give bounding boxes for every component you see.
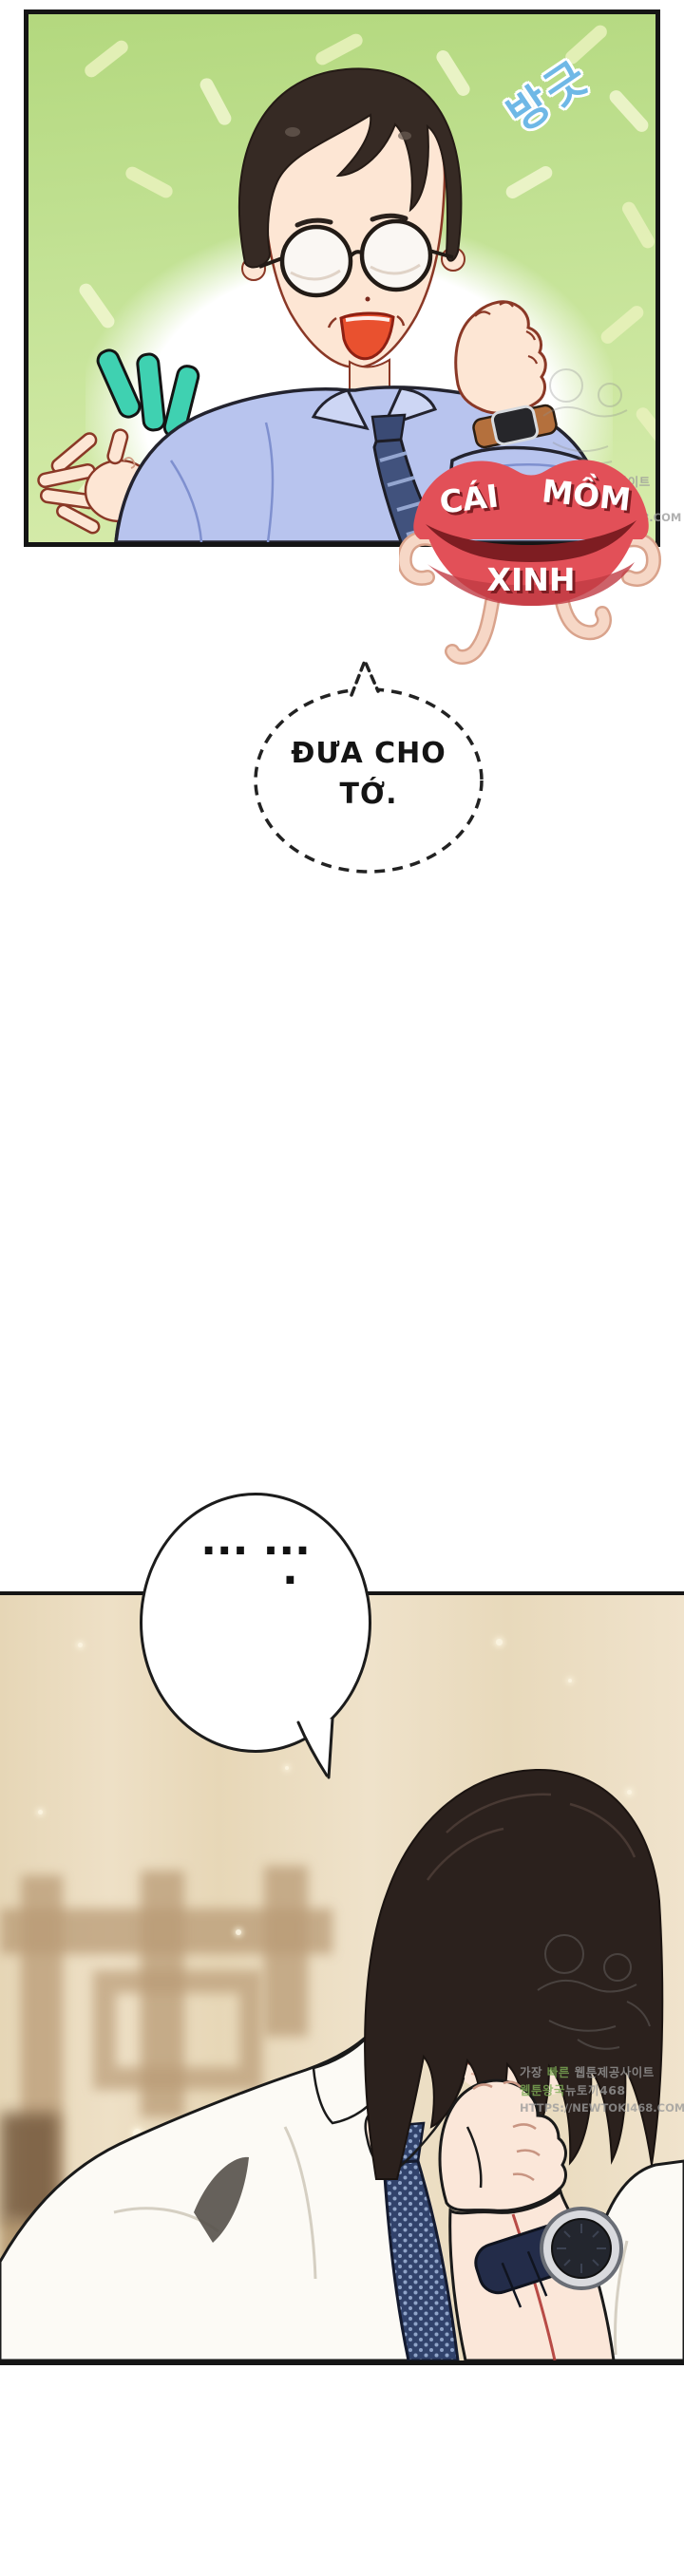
svg-text:XINH: XINH bbox=[487, 561, 576, 598]
ellipsis-period: . bbox=[282, 1546, 298, 1594]
nose bbox=[366, 297, 370, 302]
fist-and-arm bbox=[440, 2080, 621, 2360]
speech-line: TỚ. bbox=[250, 774, 487, 815]
ellipsis-text: ··· ··· bbox=[140, 1531, 371, 1572]
watermark-line1: 가장 빠른 웹툰제공사이트 bbox=[520, 2063, 676, 2081]
site-watermark: 가장 빠른 웹툰제공사이트 웹툰왕국뉴토끼468 HTTPS://NEWTOKI… bbox=[520, 2063, 676, 2117]
speech-line: ĐƯA CHO bbox=[250, 733, 487, 774]
speech-text: ĐƯA CHO TỚ. bbox=[250, 733, 487, 815]
translator-lips-sticker: CÁI CÁI MỒM MỒM XINH XINH bbox=[399, 429, 663, 668]
bubble-spike bbox=[351, 661, 378, 695]
watermark-line2: 웹툰왕국뉴토끼468 bbox=[520, 2081, 676, 2099]
svg-text:CÁI: CÁI bbox=[437, 476, 500, 520]
head bbox=[239, 68, 465, 403]
watermark-url: HTTPS://NEWTOKI468.COM bbox=[520, 2099, 676, 2117]
comic-page: 방긋 가장 빠른 웹툰제공사이트 웹툰왕국뉴토끼468 HTTPS://NEWT… bbox=[0, 0, 684, 2576]
bubble-tail bbox=[291, 1717, 348, 1783]
watermark-sketch bbox=[522, 1926, 665, 2068]
